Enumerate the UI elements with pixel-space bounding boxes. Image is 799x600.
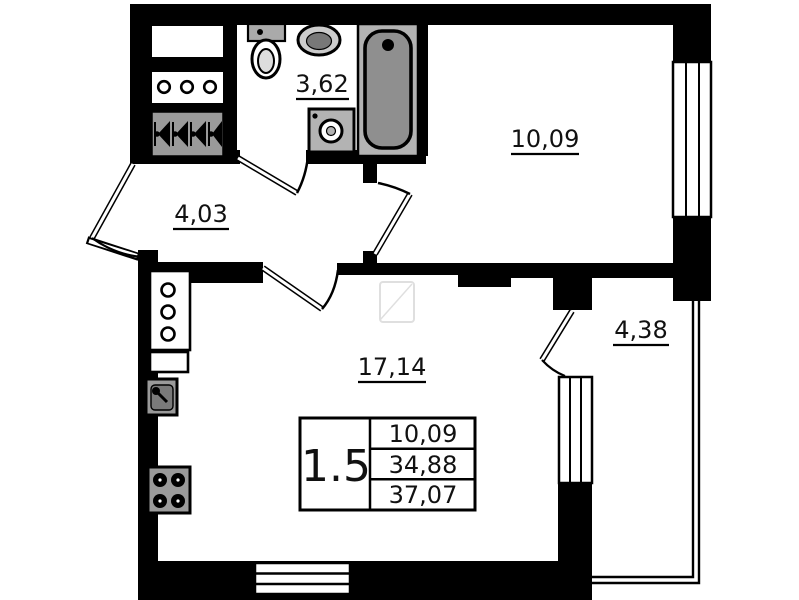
room-label-bathroom: 3,62 (295, 70, 348, 98)
entry-door (92, 164, 141, 257)
wall-door-post-upper (363, 164, 377, 183)
wash-basin-icon (298, 22, 340, 55)
wall-right-upper (673, 4, 711, 64)
kitchen-cabinet-icon (150, 352, 188, 372)
wall-bedroom-bottom (458, 263, 673, 278)
kitchen-counter-icon (150, 271, 190, 350)
legend-room-count: 1.5 (301, 441, 371, 492)
stove-icon (148, 467, 190, 513)
bedroom-door (375, 183, 410, 254)
legend-apartment-area: 34,88 (389, 451, 458, 479)
toilet-icon (248, 24, 285, 78)
wall-right-lower (673, 215, 711, 301)
shoe-cabinet-icon (152, 72, 223, 103)
bathtub-icon (358, 24, 418, 156)
legend-living-area: 10,09 (389, 420, 458, 448)
living-room-door-arc (322, 270, 338, 309)
kitchen-sink-icon (146, 379, 177, 415)
room-label-bedroom: 10,09 (511, 125, 580, 153)
wall-bottom (138, 561, 592, 600)
bedroom-window (673, 62, 711, 217)
balcony-door-arc (542, 360, 565, 376)
ghost-door (380, 282, 414, 322)
legend-total-area: 37,07 (389, 481, 458, 509)
coat-hangers-icon (152, 112, 223, 156)
floor-plan-canvas: 3,62 10,09 4,03 17,14 4,38 1.5 10,09 34,… (0, 0, 799, 600)
legend-table: 1.5 10,09 34,88 37,07 (300, 418, 475, 510)
washing-machine-icon (309, 109, 354, 152)
room-label-living: 17,14 (358, 353, 427, 381)
bathroom-door (238, 156, 308, 193)
bathroom-door-arc (297, 156, 308, 193)
floor-plan: 3,62 10,09 4,03 17,14 4,38 1.5 10,09 34,… (0, 0, 799, 600)
balcony-window (559, 377, 592, 483)
balcony-door (542, 311, 572, 376)
room-label-balcony: 4,38 (614, 316, 667, 344)
kitchen-window (255, 563, 350, 594)
room-label-hallway: 4,03 (174, 200, 227, 228)
bedroom-door-arc (378, 183, 410, 194)
wall-balcony-door-frame (553, 277, 592, 310)
closet-block (146, 21, 228, 163)
living-room-door (263, 268, 338, 309)
wardrobe-icon (152, 26, 223, 57)
